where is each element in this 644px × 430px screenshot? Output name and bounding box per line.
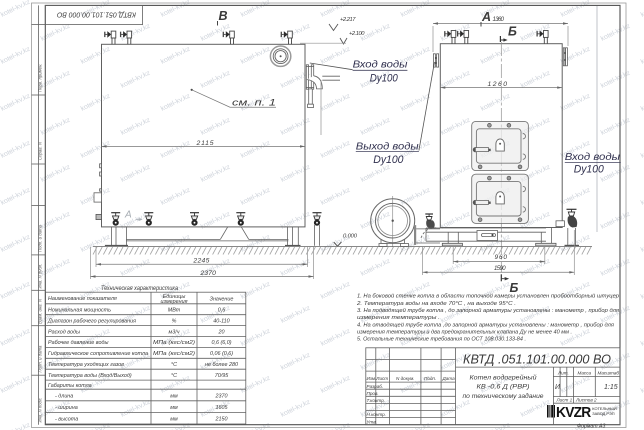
- svg-text:- высота: - высота: [55, 417, 78, 423]
- svg-text:1360: 1360: [493, 17, 505, 23]
- svg-text:Dy100: Dy100: [373, 154, 403, 166]
- svg-text:Справ. N: Справ. N: [38, 141, 43, 160]
- svg-text:см. п. 1: см. п. 1: [232, 98, 276, 108]
- svg-text:1:15: 1:15: [604, 384, 618, 391]
- svg-text:ЗАВОД РЭП: ЗАВОД РЭП: [592, 411, 614, 416]
- svg-text:Масса: Масса: [578, 370, 592, 375]
- svg-text:°С: °С: [171, 373, 177, 379]
- svg-text:Dy100: Dy100: [370, 72, 398, 84]
- svg-text:3. На подводящей трубе котла: 3. На подводящей трубе котла , до запорн…: [357, 307, 619, 314]
- svg-text:Инв. N подл.: Инв. N подл.: [38, 397, 43, 422]
- svg-text:КВТД.051.101.00.000 ВО: КВТД.051.101.00.000 ВО: [57, 10, 136, 19]
- svg-text:2370: 2370: [199, 270, 216, 277]
- svg-text:В: В: [219, 9, 228, 23]
- svg-text:2115: 2115: [196, 140, 214, 147]
- svg-text:МВт: МВт: [168, 308, 181, 314]
- svg-text:°С: °С: [171, 362, 177, 368]
- svg-text:измерения температуры .: измерения температуры .: [357, 315, 440, 321]
- svg-text:2150: 2150: [215, 417, 228, 423]
- svg-text:1260: 1260: [488, 81, 508, 88]
- svg-text:5. Остальные технические треб: 5. Остальные технические требования по О…: [357, 337, 526, 343]
- svg-text:2245: 2245: [192, 258, 209, 265]
- svg-text:Расход воды: Расход воды: [48, 329, 80, 335]
- svg-text:Номинальная мощность: Номинальная мощность: [48, 308, 111, 314]
- svg-text:20: 20: [218, 329, 225, 335]
- svg-text:1590: 1590: [494, 266, 506, 272]
- svg-text:Б: Б: [508, 25, 517, 39]
- svg-text:70/95: 70/95: [215, 373, 229, 379]
- svg-text:- длина: - длина: [55, 394, 73, 400]
- svg-text:2. Температура воды на входе: 2. Температура воды на входе 70°С , на в…: [356, 301, 516, 307]
- svg-text:КВ -0,6 Д (РВР): КВ -0,6 Д (РВР): [477, 385, 530, 391]
- svg-text:м3/ч: м3/ч: [169, 329, 180, 335]
- svg-text:Выход воды: Выход воды: [356, 140, 419, 152]
- svg-text:А: А: [124, 210, 132, 221]
- svg-text:Dy100: Dy100: [574, 164, 604, 176]
- svg-text:Температура уходящих газов: Температура уходящих газов: [48, 362, 124, 368]
- svg-text:Н.контр.: Н.контр.: [367, 412, 386, 417]
- svg-text:измерения: измерения: [161, 299, 188, 305]
- svg-text:Значение: Значение: [210, 297, 234, 303]
- svg-text:Подп. и дата: Подп. и дата: [38, 345, 43, 373]
- svg-text:+2.100: +2.100: [349, 31, 365, 37]
- svg-text:не более 280: не более 280: [205, 362, 238, 368]
- svg-text:Лит.: Лит.: [557, 370, 569, 375]
- svg-text:Масштаб: Масштаб: [598, 370, 620, 375]
- svg-text:0,6: 0,6: [218, 308, 226, 314]
- svg-text:Инв. N дубл.: Инв. N дубл.: [38, 264, 43, 289]
- svg-text:2370: 2370: [215, 394, 228, 400]
- svg-text:40-110: 40-110: [213, 318, 229, 324]
- svg-text:0,6 (6,0): 0,6 (6,0): [211, 340, 231, 346]
- svg-text:МПа (кгс/см2): МПа (кгс/см2): [153, 340, 195, 346]
- svg-text:960: 960: [495, 254, 508, 261]
- svg-text:0,06 (0,6): 0,06 (0,6): [210, 351, 233, 357]
- svg-text:МПа (кгс/см2): МПа (кгс/см2): [153, 351, 195, 357]
- svg-text:Дата: Дата: [442, 376, 456, 381]
- svg-text:+2.217: +2.217: [340, 17, 356, 23]
- svg-text:%: %: [172, 318, 177, 324]
- svg-text:Вход воды: Вход воды: [353, 59, 408, 71]
- svg-text:мм: мм: [170, 417, 178, 423]
- svg-text:по техническому задание: по техническому задание: [463, 394, 545, 400]
- svg-text:1. На боковой стенке котла в: 1. На боковой стенке котла в области топ…: [357, 293, 619, 300]
- svg-text:Пров.: Пров.: [367, 391, 379, 396]
- svg-text:Т.контр.: Т.контр.: [367, 398, 386, 403]
- svg-text:Вход воды: Вход воды: [565, 151, 620, 163]
- svg-text:Габариты котла: Габариты котла: [48, 383, 92, 389]
- svg-text:0.000: 0.000: [343, 233, 358, 239]
- svg-text:N докум.: N докум.: [396, 376, 415, 381]
- svg-text:Гидравлическое сопротивление к: Гидравлическое сопротивление котла: [48, 351, 148, 357]
- svg-text:Изм.Лист: Изм.Лист: [367, 376, 389, 381]
- svg-text:А: А: [481, 10, 491, 24]
- svg-text:Формат А3: Формат А3: [577, 424, 605, 430]
- svg-text:Диапазон рабочего регулировани: Диапазон рабочего регулирования: [47, 318, 136, 324]
- svg-text:Подп. и дата: Подп. и дата: [38, 224, 43, 252]
- svg-text:Температура воды (Вход/Выход): Температура воды (Вход/Выход): [48, 373, 132, 379]
- svg-text:измерения температуры и два пр: измерения температуры и два предохраните…: [357, 329, 572, 335]
- svg-text:KVZR: KVZR: [556, 405, 592, 421]
- svg-text:мм: мм: [170, 405, 178, 411]
- svg-text:Лист 1: Лист 1: [556, 398, 573, 403]
- svg-text:Утв.: Утв.: [367, 419, 377, 424]
- svg-text:Рабочее давление воды: Рабочее давление воды: [48, 340, 108, 346]
- svg-text:1605: 1605: [216, 405, 229, 411]
- svg-text:Взам. инв. N: Взам. инв. N: [38, 298, 43, 324]
- svg-text:Наименование показателя: Наименование показателя: [48, 296, 117, 302]
- svg-text:- ширина: - ширина: [55, 405, 78, 411]
- svg-text:КВТД .051.101.00.000 ВО: КВТД .051.101.00.000 ВО: [463, 351, 611, 366]
- svg-text:мм: мм: [170, 394, 178, 400]
- svg-text:4. На отводящей трубе котла ,: 4. На отводящей трубе котла ,до запорной…: [357, 321, 614, 328]
- svg-text:Разраб.: Разраб.: [367, 384, 384, 389]
- svg-text:Листов 2: Листов 2: [575, 398, 597, 403]
- svg-text:Техническая характеристика: Техническая характеристика: [101, 286, 179, 292]
- svg-text:Подп.: Подп.: [424, 376, 436, 381]
- svg-text:Котел водогрейный: Котел водогрейный: [470, 374, 538, 381]
- svg-text:Перв. примен.: Перв. примен.: [38, 63, 43, 92]
